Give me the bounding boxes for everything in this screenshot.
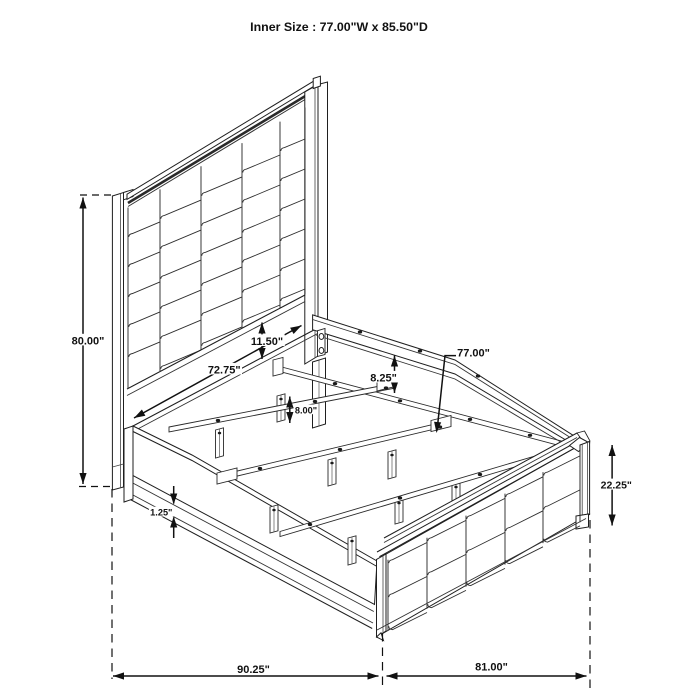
svg-text:90.25": 90.25" bbox=[237, 664, 270, 676]
svg-text:1.25": 1.25" bbox=[150, 508, 172, 518]
svg-text:8.25": 8.25" bbox=[370, 373, 397, 385]
svg-text:80.00": 80.00" bbox=[72, 335, 105, 347]
svg-text:Inner Size : 77.00"W x 85.50"D: Inner Size : 77.00"W x 85.50"D bbox=[250, 20, 428, 34]
svg-text:22.25": 22.25" bbox=[601, 480, 632, 492]
svg-text:11.50": 11.50" bbox=[251, 336, 283, 348]
svg-text:81.00": 81.00" bbox=[475, 661, 508, 673]
svg-text:77.00": 77.00" bbox=[457, 348, 490, 360]
svg-text:72.75": 72.75" bbox=[208, 365, 241, 377]
svg-text:8.00": 8.00" bbox=[295, 405, 317, 415]
